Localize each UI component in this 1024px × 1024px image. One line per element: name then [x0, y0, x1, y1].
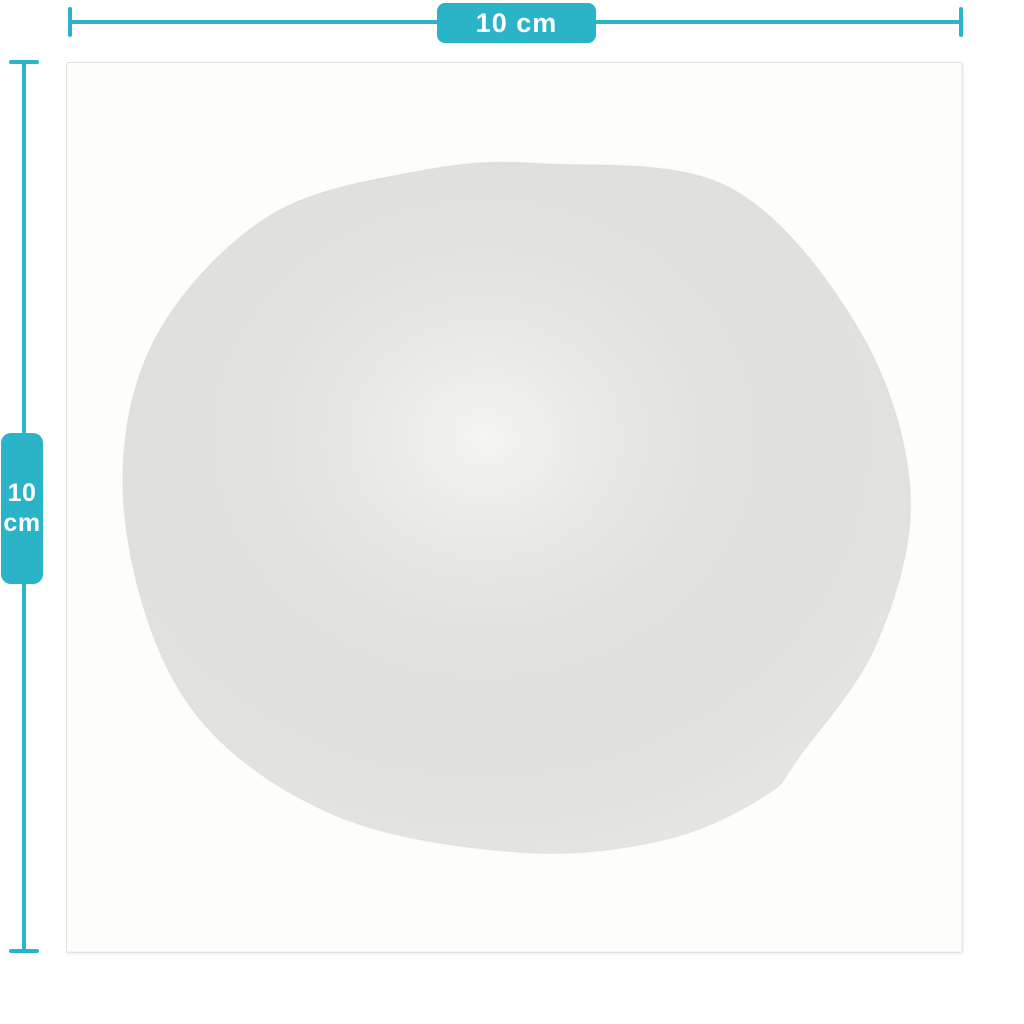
height-dimension-label: 10 cm — [1, 433, 43, 584]
round-sticker-shading — [123, 162, 910, 853]
height-dimension-unit: cm — [3, 510, 40, 538]
height-dimension-start-cap — [9, 60, 39, 64]
height-dimension-value: 10 — [8, 480, 37, 508]
width-dimension-start-cap — [68, 7, 72, 37]
square-sheet — [66, 62, 963, 953]
width-dimension-label: 10 cm — [437, 3, 596, 43]
round-sticker — [67, 63, 962, 952]
product-dimension-diagram: 10 cm 10 cm — [0, 0, 1024, 1024]
height-dimension-end-cap — [9, 949, 39, 953]
width-dimension-end-cap — [959, 7, 963, 37]
width-dimension-label-text: 10 cm — [476, 8, 558, 39]
